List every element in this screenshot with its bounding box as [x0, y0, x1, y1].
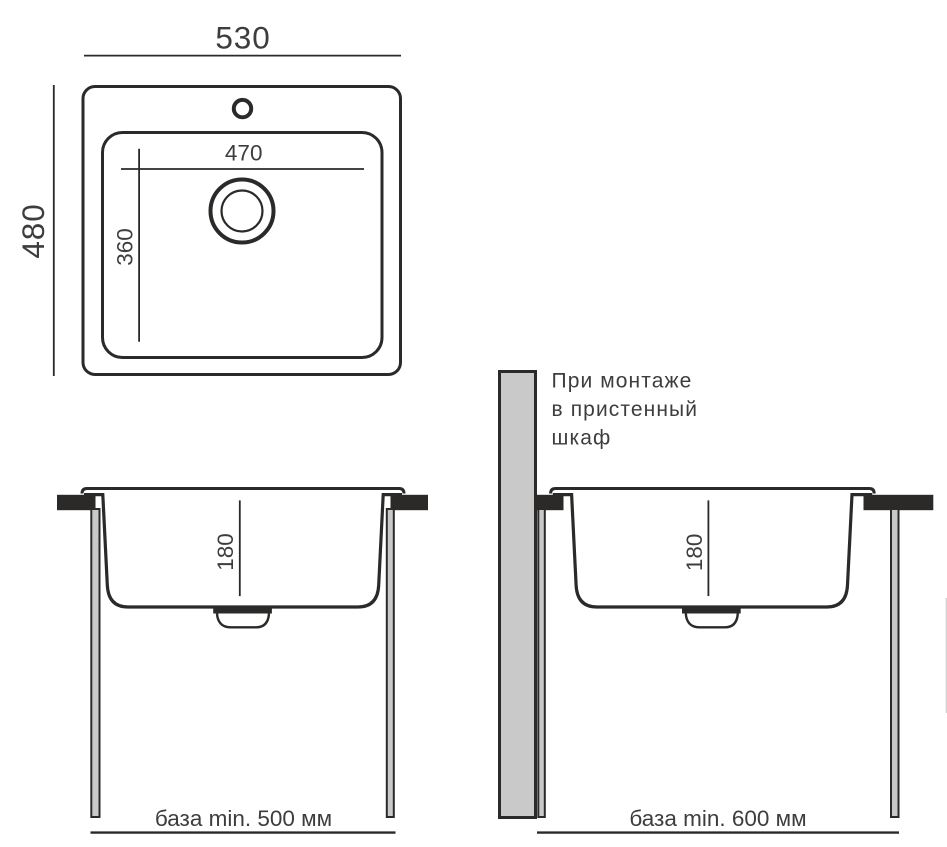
svg-text:база min. 600 мм: база min. 600 мм: [629, 806, 806, 831]
svg-text:При монтаже: При монтаже: [552, 370, 693, 393]
svg-text:180: 180: [213, 533, 238, 571]
svg-text:480: 480: [15, 203, 51, 258]
svg-text:в пристенный: в пристенный: [552, 398, 699, 421]
svg-text:шкаф: шкаф: [552, 427, 612, 450]
svg-text:база min. 500 мм: база min. 500 мм: [155, 806, 332, 831]
svg-text:360: 360: [112, 228, 137, 266]
svg-text:470: 470: [225, 141, 263, 166]
svg-text:180: 180: [682, 534, 707, 572]
svg-text:530: 530: [215, 20, 270, 56]
